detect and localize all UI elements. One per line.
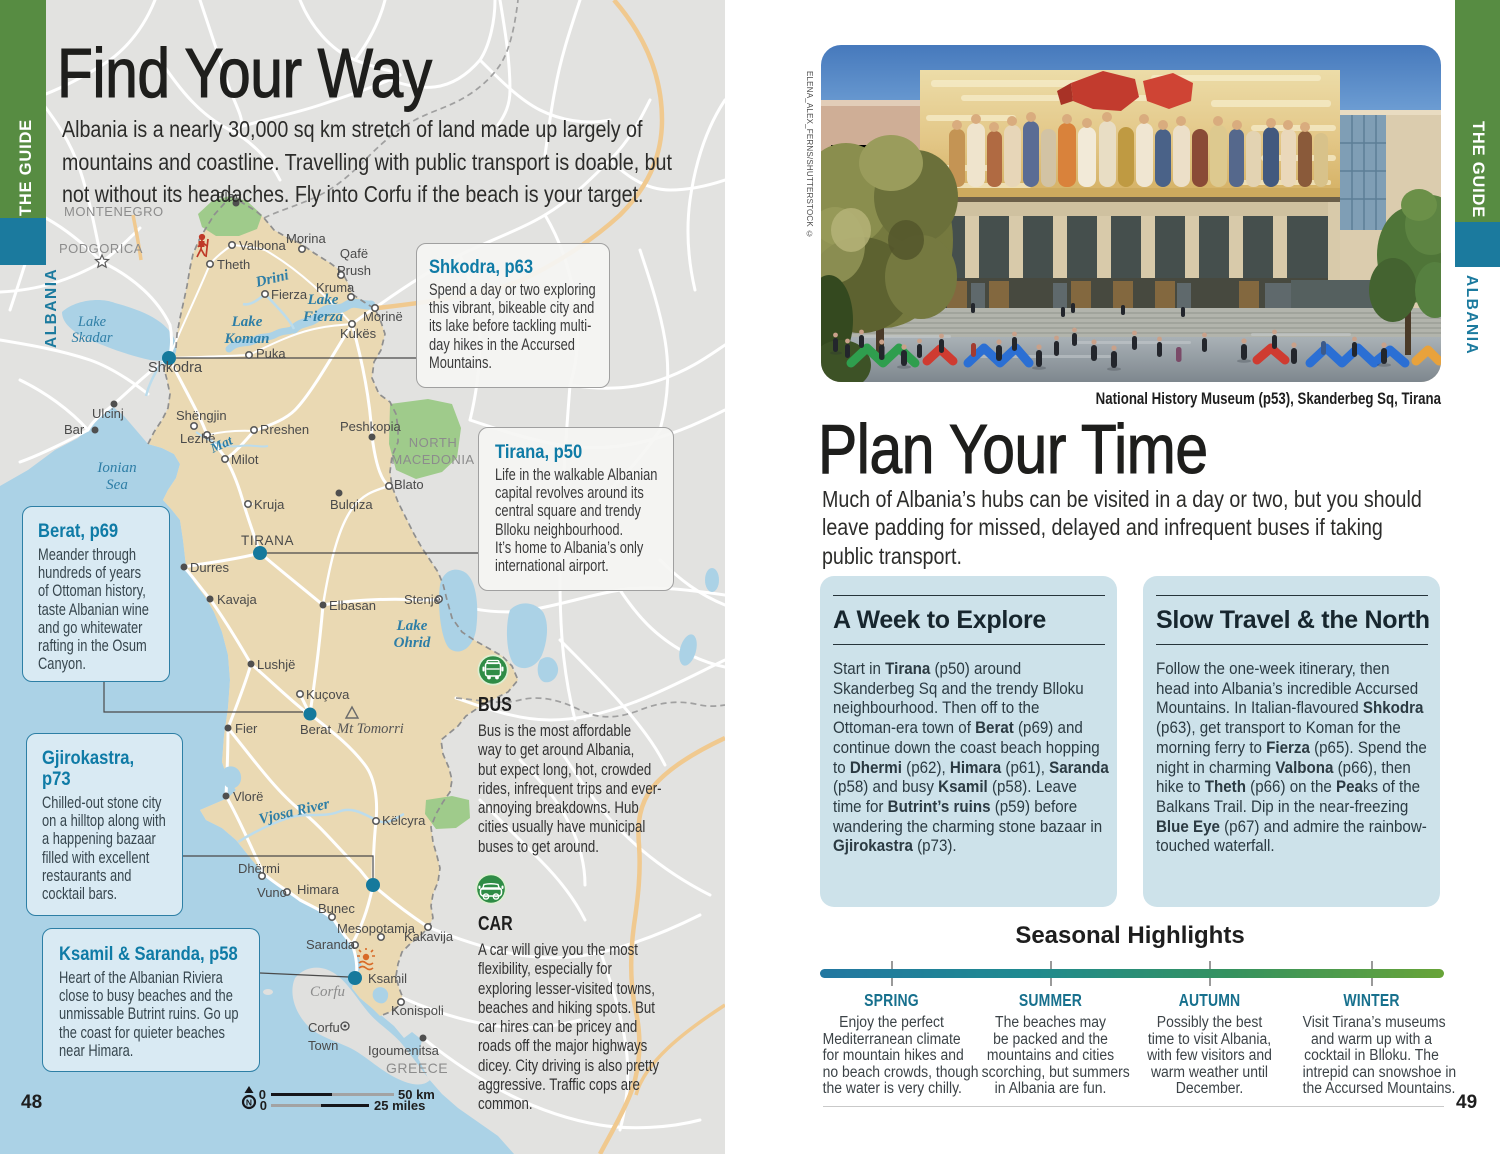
svg-text:Theth: Theth [217, 257, 250, 272]
svg-text:N: N [246, 1098, 252, 1108]
svg-text:Ionian: Ionian [96, 460, 136, 476]
svg-text:Fierza: Fierza [302, 309, 344, 325]
svg-text:Bulqiza: Bulqiza [330, 497, 373, 512]
svg-text:Kavaja: Kavaja [217, 592, 258, 607]
svg-text:Milot: Milot [231, 452, 259, 467]
svg-text:Saranda: Saranda [306, 937, 356, 952]
svg-text:25 miles: 25 miles [374, 1098, 425, 1113]
svg-text:Lake: Lake [396, 618, 428, 634]
svg-text:Vuno: Vuno [257, 885, 287, 900]
svg-text:Bar: Bar [64, 422, 85, 437]
svg-text:Qafë: Qafë [340, 246, 368, 261]
svg-text:MACEDONIA: MACEDONIA [391, 452, 474, 467]
svg-text:NORTH: NORTH [409, 435, 457, 450]
svg-text:Dhërmi: Dhërmi [238, 861, 280, 876]
svg-text:Town: Town [308, 1038, 338, 1053]
svg-text:Corfu: Corfu [308, 1020, 340, 1035]
svg-text:Durres: Durres [190, 560, 230, 575]
svg-text:Prush: Prush [337, 263, 371, 278]
svg-text:0: 0 [260, 1098, 267, 1113]
svg-text:Lushjë: Lushjë [257, 657, 295, 672]
svg-text:Elbasan: Elbasan [329, 598, 376, 613]
svg-text:Igoumenitsa: Igoumenitsa [368, 1043, 440, 1058]
svg-text:Kruja: Kruja [254, 497, 285, 512]
svg-text:Blato: Blato [394, 477, 424, 492]
svg-text:Berat: Berat [300, 722, 331, 737]
svg-text:Ohrid: Ohrid [394, 635, 431, 651]
svg-text:Vlorë: Vlorë [233, 789, 263, 804]
svg-text:Ulcinj: Ulcinj [92, 406, 124, 421]
svg-text:Fierza: Fierza [271, 287, 308, 302]
svg-text:Këlcyra: Këlcyra [382, 813, 426, 828]
svg-text:Morinë: Morinë [363, 309, 403, 324]
svg-text:PODGORICA: PODGORICA [59, 241, 143, 256]
svg-text:Mt Tomorri: Mt Tomorri [336, 721, 404, 737]
svg-text:GREECE: GREECE [386, 1060, 448, 1076]
svg-text:Skadar: Skadar [71, 330, 112, 346]
svg-text:Morina: Morina [286, 231, 327, 246]
svg-text:Peshkopia: Peshkopia [340, 419, 401, 434]
svg-text:TIRANA: TIRANA [241, 533, 294, 548]
svg-text:Konispoli: Konispoli [391, 1003, 444, 1018]
svg-text:Shëngjin: Shëngjin [176, 408, 227, 423]
svg-text:Valbona: Valbona [239, 238, 287, 253]
svg-text:Ksamil: Ksamil [368, 971, 407, 986]
svg-text:Rreshen: Rreshen [260, 422, 309, 437]
svg-text:Kukës: Kukës [340, 326, 377, 341]
svg-text:Corfu: Corfu [310, 984, 345, 1000]
svg-text:Lake: Lake [307, 292, 339, 308]
svg-text:Shkodra: Shkodra [148, 360, 203, 376]
svg-text:Lake: Lake [231, 314, 263, 330]
svg-text:Kakavija: Kakavija [404, 929, 454, 944]
svg-text:Fier: Fier [235, 721, 258, 736]
svg-text:Stenje: Stenje [404, 592, 441, 607]
svg-text:Bunec: Bunec [318, 901, 355, 916]
svg-text:Kuçova: Kuçova [306, 687, 350, 702]
svg-text:Himara: Himara [297, 882, 340, 897]
svg-text:Koman: Koman [223, 331, 269, 347]
svg-text:Puka: Puka [256, 346, 286, 361]
svg-text:Sea: Sea [106, 477, 128, 493]
svg-text:Lake: Lake [77, 314, 107, 330]
